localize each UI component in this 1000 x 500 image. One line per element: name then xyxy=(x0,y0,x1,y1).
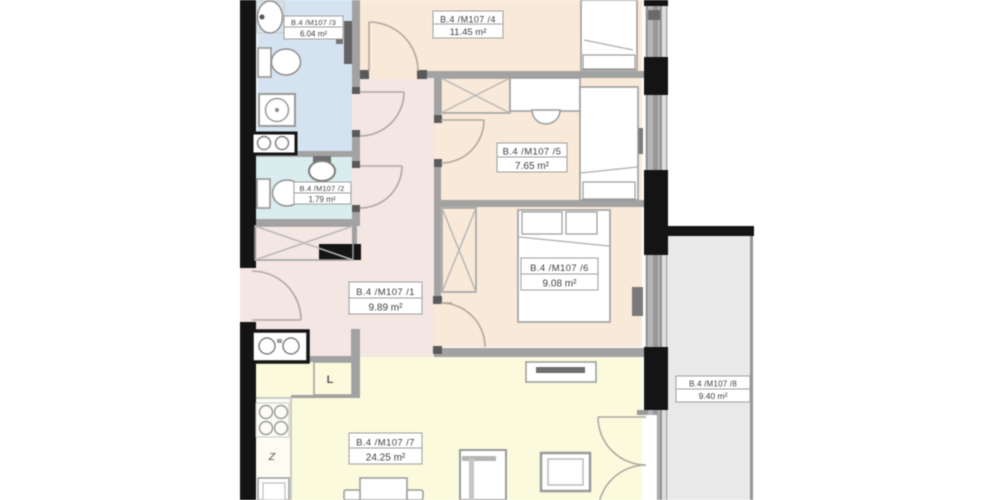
svg-text:B.4 /M107 /2: B.4 /M107 /2 xyxy=(300,184,345,193)
svg-text:11.45 m²: 11.45 m² xyxy=(450,27,487,38)
svg-text:24.25 m²: 24.25 m² xyxy=(366,453,406,464)
svg-text:B.4 /M107 /5: B.4 /M107 /5 xyxy=(503,147,562,158)
svg-text:9.08 m²: 9.08 m² xyxy=(543,279,578,290)
svg-text:L: L xyxy=(327,374,334,386)
svg-text:B.4 /M107 /4: B.4 /M107 /4 xyxy=(440,15,496,25)
svg-text:B.4 /M107 /7: B.4 /M107 /7 xyxy=(356,438,415,449)
svg-text:1.79 m²: 1.79 m² xyxy=(308,195,335,204)
svg-text:9.89 m²: 9.89 m² xyxy=(369,303,404,314)
svg-text:B.4 /M107 /3: B.4 /M107 /3 xyxy=(291,18,336,27)
svg-text:7.65 m²: 7.65 m² xyxy=(515,161,550,172)
svg-text:B.4 /M107 /6: B.4 /M107 /6 xyxy=(530,263,589,274)
svg-text:B.4 /M107 /8: B.4 /M107 /8 xyxy=(689,380,737,389)
svg-text:B.4 /M107 /1: B.4 /M107 /1 xyxy=(356,287,415,298)
svg-text:6.04 m²: 6.04 m² xyxy=(300,30,327,39)
svg-text:Z: Z xyxy=(268,451,276,463)
svg-text:9.40 m²: 9.40 m² xyxy=(699,391,728,401)
